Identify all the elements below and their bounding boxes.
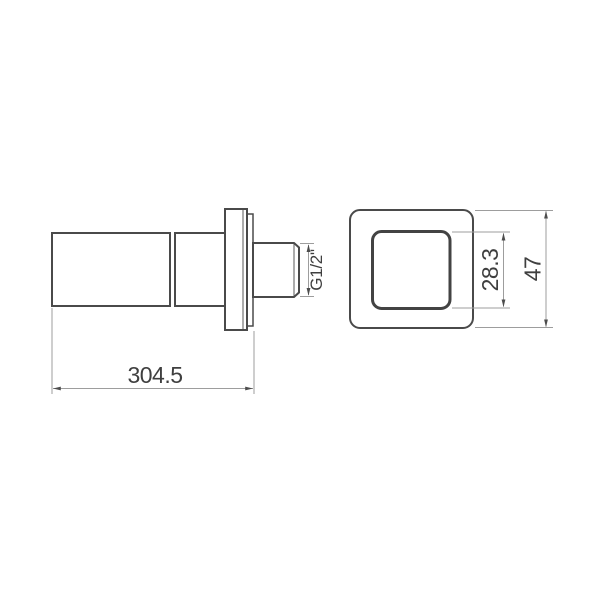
technical-drawing: G1/2" 304.5 28.3 xyxy=(0,0,600,600)
arrow-up-icon xyxy=(544,211,548,219)
technical-drawing-page: G1/2" 304.5 28.3 xyxy=(0,0,600,600)
side-view xyxy=(52,209,299,330)
outer-square-size-label: 47 xyxy=(520,257,546,282)
inner-square-boss xyxy=(373,232,451,309)
body-section-front xyxy=(175,233,226,306)
arrow-right-icon xyxy=(245,387,253,391)
dimension-thread: G1/2" xyxy=(300,244,326,297)
arrow-down-icon xyxy=(502,300,506,308)
body-section-rear xyxy=(52,233,170,306)
thread-spigot xyxy=(253,243,299,297)
dimension-length: 304.5 xyxy=(52,308,254,394)
arrow-down-icon xyxy=(544,320,548,328)
front-view xyxy=(350,210,473,328)
arrow-left-icon xyxy=(53,387,61,391)
overall-length-label: 304.5 xyxy=(127,362,182,388)
inner-square-size-label: 28.3 xyxy=(477,249,503,292)
thread-size-label: G1/2" xyxy=(307,249,326,291)
wall-flange xyxy=(225,209,247,330)
arrow-up-icon xyxy=(502,233,506,241)
